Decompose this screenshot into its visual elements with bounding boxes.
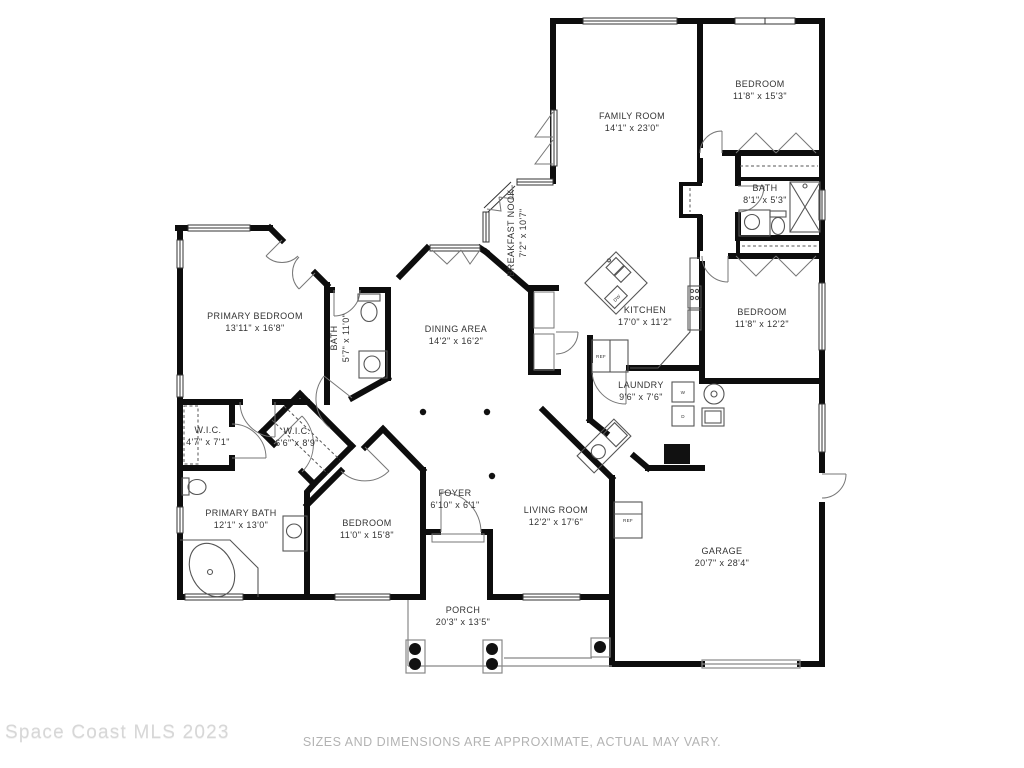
kitchen-ref-label: REF [596,354,606,359]
room-label-dining-area: DINING AREA 14'2" x 16'2" [425,323,487,347]
shower-head-icon [803,184,807,188]
room-label-wic-2: W.I.C. 6'6" x 8'9" [275,425,319,449]
toilet-tank [358,294,380,301]
toilet-tank [770,211,786,217]
room-label-foyer: FOYER 6'10" x 6'1" [430,487,479,511]
vanity [739,210,770,236]
floor-plan: REF REF DW W D FAMILY ROOM 14'1" x 23'0"… [0,0,1024,768]
water-heater [704,384,724,404]
room-label-primary-bath: PRIMARY BATH 12'1" x 13'0" [205,507,276,531]
room-label-wic-1: W.I.C. 4'7" x 7'1" [186,424,230,448]
tub-platform [180,540,258,597]
room-label-garage: GARAGE 20'7" x 28'4" [695,545,750,569]
room-label-kitchen: KITCHEN 17'0" x 11'2" [618,304,672,328]
room-label-bedroom-2: BEDROOM 11'8" x 12'2" [735,306,789,330]
room-label-laundry: LAUNDRY 9'6" x 7'6" [618,379,664,403]
room-label-living-room: LIVING ROOM 12'2" x 17'6" [524,504,588,528]
room-label-primary-bedroom: PRIMARY BEDROOM 13'11" x 16'8" [207,310,303,334]
floor-plan-drawing: REF REF DW W D [0,0,1024,768]
room-label-bath-1: BATH 8'1" x 5'3" [743,182,787,206]
door-openings [441,148,827,537]
toilet [772,218,785,235]
room-label-bedroom-1: BEDROOM 11'8" x 15'3" [733,78,787,102]
room-label-bath-2: BATH 5'7" x 11'0" [328,314,352,363]
dryer-label: D [681,414,685,419]
laundry-counter [577,419,631,473]
sink [364,356,380,372]
sink-basin [615,266,631,282]
dishwasher-label: DW [612,293,622,303]
room-label-porch: PORCH 20'3" x 13'5" [436,604,491,628]
garage-ref-label: REF [623,518,633,523]
toilet [361,303,377,322]
washer-label: W [681,390,686,395]
vanity [359,351,387,378]
toilet [188,480,206,495]
sink-basin [606,258,624,276]
disclaimer-text: SIZES AND DIMENSIONS ARE APPROXIMATE, AC… [0,735,1024,749]
sink [287,524,302,538]
room-label-bedroom-3: BEDROOM 11'0" x 15'8" [340,517,394,541]
room-label-breakfast-nook: BREAKFAST NOOK 7'2" x 10'7" [505,189,529,276]
room-label-family-room: FAMILY ROOM 14'1" x 23'0" [599,110,665,134]
sink [745,215,760,230]
